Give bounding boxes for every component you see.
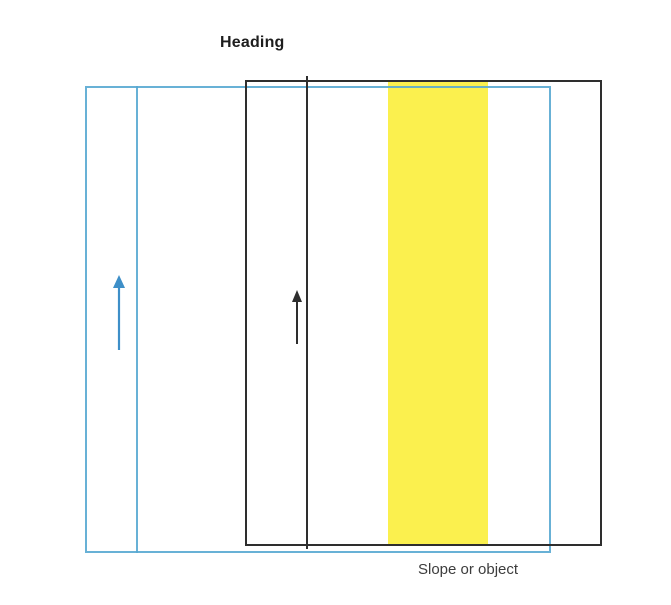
black-up-arrow-icon xyxy=(288,288,306,346)
diagram-canvas: Heading Slope or object xyxy=(0,0,671,605)
blue-divider-line xyxy=(136,86,138,553)
slope-caption: Slope or object xyxy=(418,561,518,578)
blue-up-arrow-icon xyxy=(108,272,130,354)
black-divider-line xyxy=(306,76,308,549)
diagram-heading: Heading xyxy=(220,34,285,52)
